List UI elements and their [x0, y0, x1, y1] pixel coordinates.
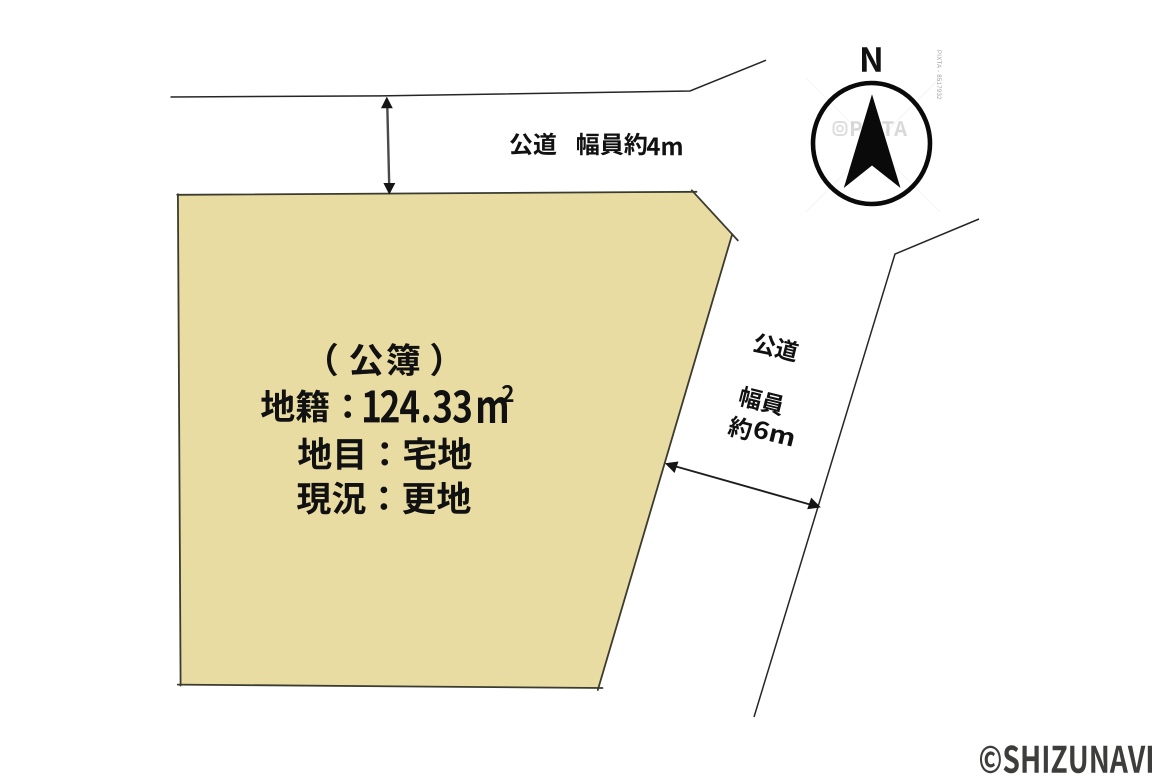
svg-text:PIXTA - 8517932: PIXTA - 8517932: [935, 50, 941, 100]
